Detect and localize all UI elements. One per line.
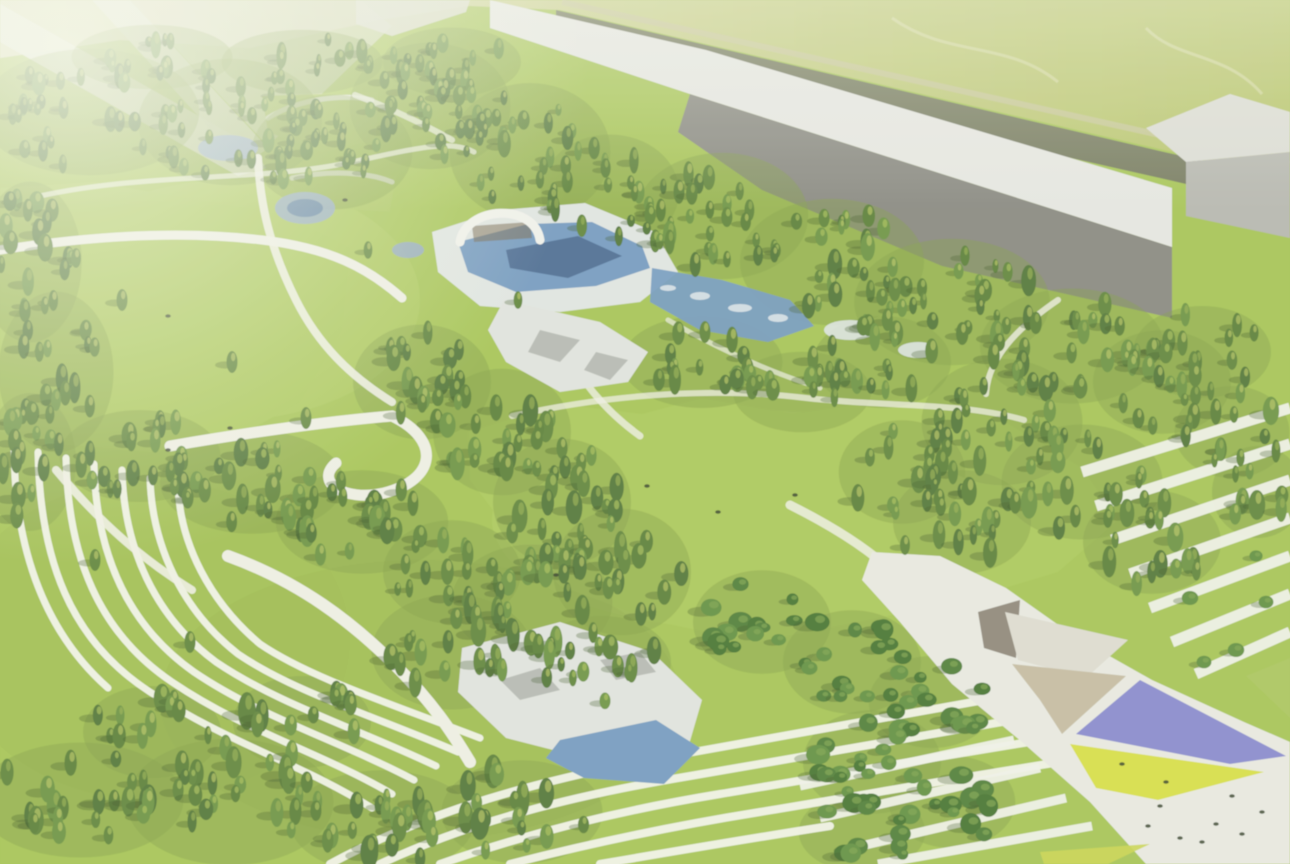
park-masterplan-rendering — [0, 0, 1290, 864]
haze-overlay — [0, 0, 1290, 864]
aerial-render-canvas — [0, 0, 1290, 864]
